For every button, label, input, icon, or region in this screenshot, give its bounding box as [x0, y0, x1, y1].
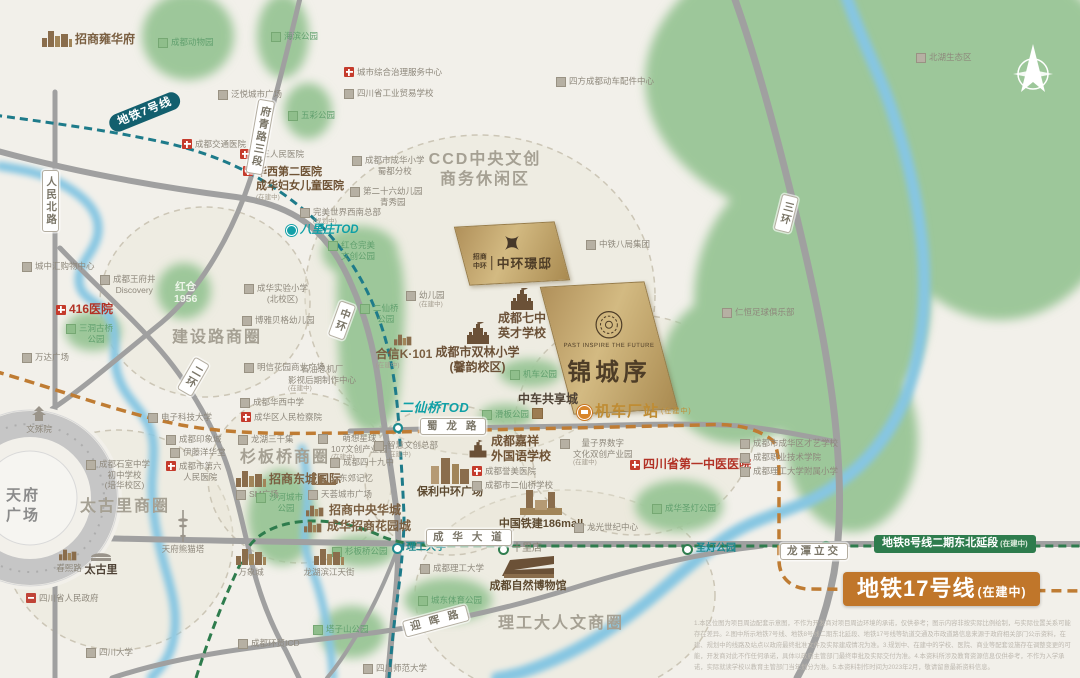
huaban-park: 滑板公园: [482, 409, 529, 420]
metro17-badge-text: 地铁17号线: [857, 575, 975, 603]
building-marker-icon: [242, 315, 252, 326]
chengdong-sport-park-text: 城东体育公园: [431, 595, 482, 606]
zhaoshang-yonghuafu-text: 招商雍华府: [75, 32, 135, 47]
longhu-3000: 龙湖三千集: [238, 434, 294, 445]
ito-yokado-text: 伊藤洋华堂: [183, 447, 226, 458]
panda-tower: 天府熊猫塔: [148, 510, 218, 555]
city-governance-center: 城市综合治理服务中心: [344, 67, 442, 78]
building-marker-icon: [170, 447, 180, 458]
building-marker-icon: [236, 489, 246, 500]
metro-station-icon: [392, 543, 403, 554]
jichechang-station-status: (在建中): [661, 408, 692, 416]
building-marker-icon: [218, 89, 228, 100]
first-tcm-hospital: 四川省第一中医医院: [630, 457, 751, 472]
park-marker-icon: [158, 37, 168, 48]
park-marker-icon: [652, 503, 662, 514]
ligong-district-text: 理工大人文商圈: [498, 614, 624, 634]
metro7-badge-text: 地铁7号线: [116, 95, 175, 130]
kindergarten-26: 第二十六幼儿园 青秀园: [350, 186, 423, 207]
hospital-cross-icon: [182, 139, 192, 149]
jiaxiang-school: 成都嘉祥 外国语学校: [468, 434, 551, 464]
building-marker-icon: [244, 362, 254, 373]
yumei-hospital: 成都誉美医院: [472, 466, 536, 477]
park-marker-icon: [271, 31, 281, 42]
building-marker-icon: [330, 457, 340, 468]
hospital-416: 416医院: [56, 302, 113, 317]
building-marker-icon: [350, 186, 360, 197]
sichuan-normal-univ-text: 四川师范大学: [376, 663, 427, 674]
shanbanqiao-district: 杉板桥商圈: [240, 448, 330, 468]
chengdu-icd-text: 成都环贸ICD: [251, 638, 300, 649]
road-sanhuan-text: 三环: [777, 200, 796, 227]
chengdu-49-school-text: 成都四十九中: [343, 457, 394, 468]
temple-icon: [30, 406, 48, 422]
perfect-world-hq-text: 完美世界西南总部: [313, 207, 381, 218]
sifang-parts-center: 四方成都动车配件中心: [556, 76, 654, 87]
sixth-people-hospital: 成都市第六 人民医院: [166, 461, 222, 482]
sichuan-univ: 四川大学: [86, 647, 133, 658]
vocational-college: 成都职业技术学院: [740, 452, 821, 463]
chengdu-zoo-text: 成都动物园: [171, 37, 214, 48]
building-marker-icon: [740, 452, 750, 463]
tazishan-park: 塔子山公园: [313, 624, 369, 635]
station-shengdeng-text: 圣灯公园: [696, 543, 736, 556]
building-marker-icon: [916, 52, 926, 63]
erxianqiao-park: 二仙桥 公园: [360, 303, 399, 324]
metro8-badge-text: 地铁8号线二期东北延段: [882, 537, 998, 551]
mall-building-icon: [518, 488, 564, 516]
wenshu-monastery: 文殊院: [16, 406, 62, 435]
road-shulong: 蜀 龙 路: [420, 418, 486, 435]
road-fuqing-3: 府青路三段: [246, 99, 276, 175]
hexin-k101: 合信K·101(在建中): [366, 334, 442, 370]
fanyue-plaza: 泛悦城市广场: [218, 89, 282, 100]
zhihui-hq: 智慧文创总部(在建中): [374, 440, 438, 458]
tianfu-square-label-text: 天府 广场: [6, 486, 40, 525]
wucai-park: 五彩公园: [288, 110, 335, 121]
building-marker-icon: [740, 438, 750, 449]
tod-erxianqiao: 二仙桥TOD: [400, 400, 469, 416]
liangzijie-status: (在建中): [573, 459, 633, 467]
longhu-3000-text: 龙湖三千集: [251, 434, 294, 445]
buildings-icon: [306, 505, 326, 517]
shanbanqiao-district-text: 杉板桥商圈: [240, 448, 330, 468]
building-marker-icon: [308, 489, 318, 500]
zs-zhongyang-huacheng: 招商中央华城: [306, 503, 401, 518]
park-marker-icon: [360, 303, 370, 314]
longtan-interchange: 龙潭立交: [780, 543, 848, 560]
ligong-district: 理工大人文商圈: [498, 614, 624, 634]
taikooli: 太古里: [78, 549, 124, 578]
zhihui-hq-text: 智慧文创总部: [387, 440, 438, 451]
zhongche-city: 中车共享城: [518, 392, 578, 407]
building-marker-icon: [722, 307, 732, 318]
wanda-plaza: 万达广场: [22, 352, 69, 363]
tower-icon: [177, 510, 189, 542]
metro8-badge: 地铁8号线二期东北延段(在建中): [874, 535, 1036, 553]
chenghua-shengdeng-park-text: 成华圣灯公园: [665, 503, 716, 514]
tod-station-icon: [286, 225, 297, 236]
building-marker-icon: [532, 408, 543, 419]
chenghua-exp-primary-text: 成华实验小学 (北校区): [257, 283, 308, 304]
shahe-city-park: 沙河城市 公园: [256, 492, 303, 513]
industry-trade-school-text: 四川省工业贸易学校: [357, 88, 434, 99]
hospital-cross-icon: [472, 466, 482, 476]
huaxi-middle-school: 成都华西中学: [240, 397, 304, 408]
hongcang-perfect-park-text: 红仓完美 文创公园: [341, 240, 375, 261]
liangzijie: 量子界数字 文化双创产业园(在建中): [560, 438, 633, 467]
wenshu-monastery-text: 文殊院: [26, 424, 52, 435]
road-yinghui: 迎 晖 路: [402, 604, 471, 638]
beihu-eco-zone: 北湖生态区: [916, 52, 972, 63]
huaxi-second-hospital-status: (在建中): [256, 194, 344, 202]
building-marker-icon: [100, 274, 110, 285]
hospital-cross-icon: [241, 412, 251, 422]
building-marker-icon: [148, 412, 158, 423]
building-marker-icon: [166, 434, 176, 445]
park-marker-icon: [256, 492, 266, 503]
vocational-college-text: 成都职业技术学院: [753, 452, 821, 463]
building-marker-icon: [406, 290, 416, 301]
hospital-cross-icon: [56, 305, 66, 315]
tianhui-plaza-text: 天荟城市广场: [321, 489, 372, 500]
taikooli-text: 太古里: [85, 564, 118, 578]
wangfujing-discovery-text: 成都王府井 Discovery: [113, 274, 156, 295]
chenghua-primary-text: 成都市成华小学 蜀都分校: [365, 155, 425, 176]
wanxiangcheng-text: 万象城: [238, 567, 264, 578]
building-marker-icon: [586, 239, 596, 250]
train-station-icon: [577, 405, 592, 420]
building-marker-icon: [352, 155, 362, 166]
pavilion-icon: [89, 549, 113, 562]
longtan-interchange-text: 龙潭立交: [787, 545, 841, 558]
hospital-cross-icon: [344, 67, 354, 77]
hongcang-1956-text: 红仓 1956: [174, 281, 197, 305]
shishi-middle-text: 成都石室中学 初中学校 (培华校区): [99, 459, 150, 491]
road-chenghua-ave-text: 成 华 大 道: [433, 531, 505, 544]
chengdu-49-school: 成都四十九中: [330, 457, 394, 468]
chengzhonghui-mall: 城中汇购物中心: [22, 261, 95, 272]
nature-museum: 成都自然博物馆: [478, 554, 578, 594]
yinxiangcheng: 成都印象城: [166, 434, 222, 445]
wanda-plaza-text: 万达广场: [35, 352, 69, 363]
shahe-city-park-text: 沙河城市 公园: [269, 492, 303, 513]
uestc: 电子科技大学: [148, 412, 212, 423]
school-icon: [465, 322, 491, 344]
huaxi-middle-school-text: 成都华西中学: [253, 397, 304, 408]
shishi-middle: 成都石室中学 初中学校 (培华校区): [86, 459, 150, 491]
building-marker-icon: [86, 459, 96, 470]
park-marker-icon: [313, 624, 323, 635]
huaxi-second-hospital-text: 华西第二医院 成华妇女儿童医院: [256, 166, 344, 194]
buildings-icon: [314, 549, 344, 565]
tod-balizhuang-text: 八里庄TOD: [300, 223, 359, 237]
buildings-icon: [394, 334, 414, 346]
tod-balizhuang: 八里庄TOD: [286, 223, 359, 237]
road-renmin-north: 人民北路: [42, 170, 59, 232]
buildings-icon: [236, 471, 266, 487]
longguang-center-text: 龙光世纪中心: [587, 522, 638, 533]
procuratorate: 成华区人民检察院: [241, 412, 322, 423]
building-marker-icon: [374, 440, 384, 451]
shiyou-factory-status: (在建中): [288, 385, 356, 393]
tazishan-park-text: 塔子山公园: [326, 624, 369, 635]
school-icon: [468, 439, 488, 459]
shuanglin-primary-text: 成都市双林小学 (馨韵校区): [435, 345, 519, 375]
building-marker-icon: [420, 563, 430, 574]
sifang-parts-center-text: 四方成都动车配件中心: [569, 76, 654, 87]
renheng-football-club: 仁恒足球俱乐部: [722, 307, 795, 318]
building-marker-icon: [574, 522, 584, 533]
map-canvas: 招商中环 中环璟邸 PAST INSPIRE THE FUTURE 锦城序 北 …: [0, 0, 1080, 678]
zhihui-hq-status: (在建中): [387, 451, 438, 459]
longhu-binjiang: 龙湖滨江天街: [295, 549, 363, 578]
chengdu-ligong-univ-text: 成都理工大学: [433, 563, 484, 574]
chengdu-zoo: 成都动物园: [158, 37, 214, 48]
jiche-park: 机车公园: [510, 369, 557, 380]
ccd-district-text: CCD中央文创 商务休闲区: [429, 150, 542, 190]
boya-kindergarten-text: 博雅贝格幼儿园: [255, 315, 315, 326]
ch-zs-huayuancheng-text: 成华招商花园城: [327, 519, 411, 534]
kindergarten-new-status: (在建中): [419, 301, 445, 309]
panda-tower-text: 天府熊猫塔: [162, 544, 205, 555]
station-shilidian-text: 十里店: [512, 543, 542, 556]
building-marker-icon: [472, 480, 482, 491]
jiaotong-hospital-text: 成都交通医院: [195, 139, 246, 150]
park-marker-icon: [328, 240, 338, 251]
factory-icon: [310, 473, 336, 486]
beihu-eco-zone-text: 北湖生态区: [929, 52, 972, 63]
building-marker-icon: [560, 438, 570, 449]
ccd-district: CCD中央文创 商务休闲区: [420, 150, 550, 190]
city-governance-center-text: 城市综合治理服务中心: [357, 67, 442, 78]
buildings-icon: [429, 456, 471, 484]
zhongtie-8ju-text: 中铁八局集团: [599, 239, 650, 250]
road-erhuan: 二环: [177, 356, 210, 397]
building-marker-icon: [22, 261, 32, 272]
metro17-badge-status: (在建中): [977, 585, 1026, 599]
first-tcm-hospital-text: 四川省第一中医医院: [643, 457, 751, 472]
building-marker-icon: [740, 466, 750, 477]
hospital-416-text: 416医院: [69, 302, 113, 317]
park-marker-icon: [288, 110, 298, 121]
haibin-park-text: 海滨公园: [284, 31, 318, 42]
fanyue-plaza-text: 泛悦城市广场: [231, 89, 282, 100]
zhongtie-8ju: 中铁八局集团: [586, 239, 650, 250]
wangfujing-discovery: 成都王府井 Discovery: [100, 274, 156, 295]
road-renmin-north-text: 人民北路: [44, 176, 57, 226]
boya-kindergarten: 博雅贝格幼儿园: [242, 315, 315, 326]
road-sanhuan: 三环: [774, 194, 800, 234]
metro17-badge: 地铁17号线(在建中): [843, 572, 1040, 606]
renheng-football-club-text: 仁恒足球俱乐部: [735, 307, 795, 318]
kindergarten-26-text: 第二十六幼儿园 青秀园: [363, 186, 423, 207]
building-marker-icon: [318, 433, 328, 444]
nature-museum-text: 成都自然博物馆: [490, 580, 567, 594]
hexin-k101-text: 合信K·101: [376, 347, 433, 362]
ch-zs-huayuancheng: 成华招商花园城: [304, 519, 411, 534]
park-marker-icon: [510, 369, 520, 380]
government-icon: [26, 593, 36, 603]
building-marker-icon: [556, 76, 566, 87]
hexin-k101-status: (在建中): [376, 362, 433, 370]
dongjiao-memory: 东郊记忆: [310, 473, 373, 486]
yinxiangcheng-text: 成都印象城: [179, 434, 222, 445]
chengdu-icd: 成都环贸ICD: [238, 638, 300, 649]
buildings-icon: [59, 549, 79, 561]
jiaxiang-school-text: 成都嘉祥 外国语学校: [491, 434, 551, 464]
building-marker-icon: [240, 397, 250, 408]
map-labels-layer: 招商雍华府成都动物园海滨公园泛悦城市广场城市综合治理服务中心四川省工业贸易学校四…: [0, 0, 1080, 678]
haibin-park: 海滨公园: [271, 31, 318, 42]
mingxin-plaza-text: 明信花园商业广场: [257, 362, 325, 373]
jiche-park-text: 机车公园: [523, 369, 557, 380]
buildings-icon: [236, 549, 266, 565]
caiyi-school-text: 成都市成华区才艺学校: [753, 438, 838, 449]
zs-zhongyang-huacheng-text: 招商中央华城: [329, 503, 401, 518]
hongcang-perfect-park: 红仓完美 文创公园: [328, 240, 375, 261]
museum-icon: [500, 554, 556, 578]
provincial-gov: 四川省人民政府: [26, 593, 99, 604]
jichechang-station: 机车厂站(在建中): [577, 403, 692, 422]
school-icon: [509, 288, 535, 310]
zhongche-marker: [532, 408, 543, 419]
tianhui-plaza: 天荟城市广场: [308, 489, 372, 500]
industry-trade-school: 四川省工业贸易学校: [344, 88, 434, 99]
sichuan-normal-univ: 四川师范大学: [363, 663, 427, 674]
chenghua-exp-primary: 成华实验小学 (北校区): [244, 283, 308, 304]
chengdu-ligong-univ: 成都理工大学: [420, 563, 484, 574]
kindergarten-new: 幼儿园(在建中): [406, 290, 445, 308]
building-marker-icon: [344, 88, 354, 99]
caiyi-school: 成都市成华区才艺学校: [740, 438, 838, 449]
park-marker-icon: [66, 323, 76, 334]
road-chenghua-ave: 成 华 大 道: [426, 529, 512, 546]
station-shengdeng: 圣灯公园: [682, 543, 736, 556]
road-erhuan-text: 二环: [181, 363, 205, 391]
longguang-center: 龙光世纪中心: [574, 522, 638, 533]
metro7-badge: 地铁7号线: [107, 89, 184, 134]
tianfu-square-label: 天府 广场: [6, 486, 40, 525]
building-marker-icon: [86, 647, 96, 658]
buildings-icon: [42, 31, 72, 47]
building-marker-icon: [300, 207, 310, 218]
building-marker-icon: [244, 283, 254, 294]
tod-erxianqiao-text: 二仙桥TOD: [400, 400, 469, 416]
building-marker-icon: [363, 663, 373, 674]
metro8-badge-status: (在建中): [1000, 539, 1028, 548]
wanxiangcheng: 万象城: [228, 549, 274, 578]
metro-station-icon: [682, 544, 693, 555]
erxianqiao-park-text: 二仙桥 公园: [373, 303, 399, 324]
jichechang-station-text: 机车厂站: [595, 403, 659, 422]
ito-yokado: 伊藤洋华堂: [170, 447, 226, 458]
huaban-park-text: 滑板公园: [495, 409, 529, 420]
zhongche-city-text: 中车共享城: [518, 392, 578, 407]
hospital-cross-icon: [166, 461, 176, 471]
building-marker-icon: [238, 638, 248, 649]
road-yinghui-text: 迎 晖 路: [409, 608, 463, 634]
buildings-icon: [304, 521, 324, 533]
hospital-cross-icon: [630, 460, 640, 470]
jiaotong-hospital: 成都交通医院: [182, 139, 246, 150]
sandong-bridge-park: 三洞古桥 公园: [66, 323, 113, 344]
provincial-gov-text: 四川省人民政府: [39, 593, 99, 604]
jianshelu-district-text: 建设路商圈: [172, 328, 262, 348]
sixth-people-hospital-text: 成都市第六 人民医院: [179, 461, 222, 482]
road-shulong-text: 蜀 龙 路: [427, 420, 479, 433]
chenghua-shengdeng-park: 成华圣灯公园: [652, 503, 716, 514]
ligong-primary-text: 成都理工大学附属小学: [753, 466, 838, 477]
wucai-park-text: 五彩公园: [301, 110, 335, 121]
liangzijie-text: 量子界数字 文化双创产业园: [573, 438, 633, 459]
longhu-binjiang-text: 龙湖滨江天街: [303, 567, 354, 578]
chengzhonghui-mall-text: 城中汇购物中心: [35, 261, 95, 272]
kindergarten-new-text: 幼儿园: [419, 290, 445, 301]
sandong-bridge-park-text: 三洞古桥 公园: [79, 323, 113, 344]
sichuan-univ-text: 四川大学: [99, 647, 133, 658]
dongjiao-memory-text: 东郊记忆: [339, 473, 373, 484]
hongcang-1956: 红仓 1956: [174, 281, 197, 305]
uestc-text: 电子科技大学: [161, 412, 212, 423]
zhaoshang-yonghuafu: 招商雍华府: [42, 31, 135, 47]
chengdong-sport-park: 城东体育公园: [418, 595, 482, 606]
mingxin-plaza: 明信花园商业广场: [244, 362, 325, 373]
procuratorate-text: 成华区人民检察院: [254, 412, 322, 423]
park-marker-icon: [418, 595, 428, 606]
ligong-primary: 成都理工大学附属小学: [740, 466, 838, 477]
road-zhonghuan-text: 中环: [332, 306, 353, 334]
road-zhonghuan: 中环: [328, 300, 357, 341]
chenghua-primary: 成都市成华小学 蜀都分校: [352, 155, 425, 176]
yumei-hospital-text: 成都誉美医院: [485, 466, 536, 477]
jianshelu-district: 建设路商圈: [172, 328, 262, 348]
building-marker-icon: [238, 434, 248, 445]
building-marker-icon: [22, 352, 32, 363]
